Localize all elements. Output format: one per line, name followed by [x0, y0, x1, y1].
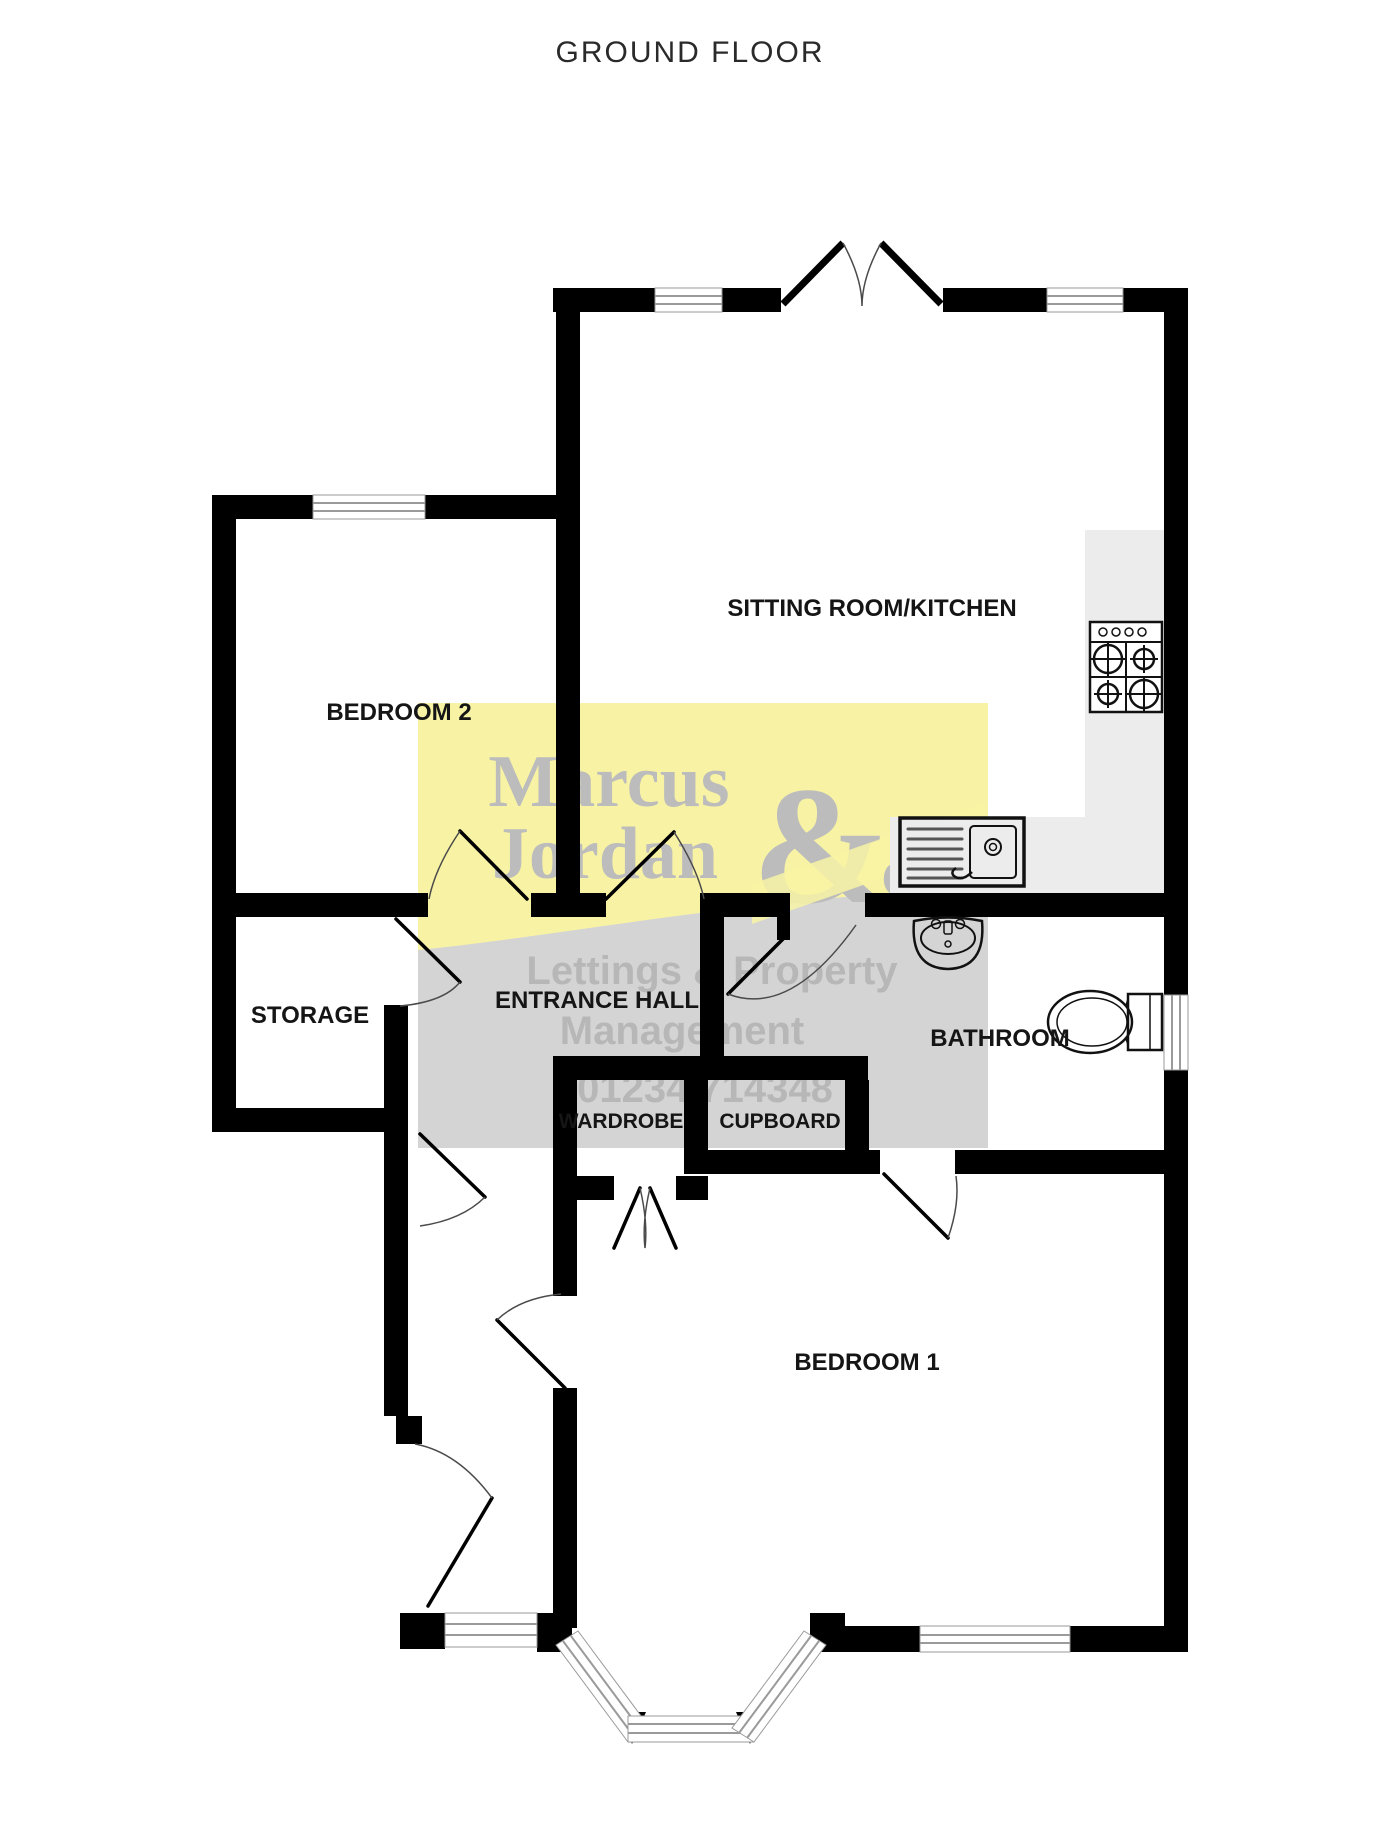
front-door [415, 1444, 492, 1606]
window-vestibule [445, 1613, 537, 1647]
label-bedroom-2: BEDROOM 2 [326, 699, 471, 726]
label-sitting-room-kitchen: SITTING ROOM/KITCHEN [727, 595, 1016, 622]
floor-plan-svg: Marcus Jordan & Co Lettings & Property M… [0, 0, 1396, 1845]
watermark-brand-line2: Jordan [492, 813, 718, 895]
window-sitting-left [655, 288, 722, 312]
window-sitting-right [1047, 288, 1123, 312]
hob-icon [1090, 622, 1162, 712]
french-doors-sitting [783, 243, 941, 306]
page-title: GROUND FLOOR [555, 36, 824, 69]
floor-plan-page: Marcus Jordan & Co Lettings & Property M… [0, 0, 1396, 1845]
window-bedroom1 [920, 1626, 1070, 1652]
watermark-brand-line1: Marcus [488, 741, 729, 823]
label-bedroom-1: BEDROOM 1 [794, 1349, 939, 1376]
watermark-tagline2: Management [560, 1009, 805, 1053]
window-bathroom [1164, 995, 1188, 1070]
label-storage: STORAGE [251, 1002, 369, 1029]
bay-window [556, 1631, 826, 1742]
wardrobe-double-doors [614, 1188, 676, 1248]
door-bedroom1-top [884, 1174, 957, 1238]
door-bedroom1 [497, 1294, 565, 1388]
label-entrance-hall: ENTRANCE HALL [495, 987, 699, 1014]
window-bedroom2 [313, 495, 425, 519]
label-bathroom: BATHROOM [930, 1025, 1070, 1052]
label-cupboard: CUPBOARD [719, 1110, 840, 1133]
label-wardrobe: WARDROBE [559, 1110, 684, 1133]
